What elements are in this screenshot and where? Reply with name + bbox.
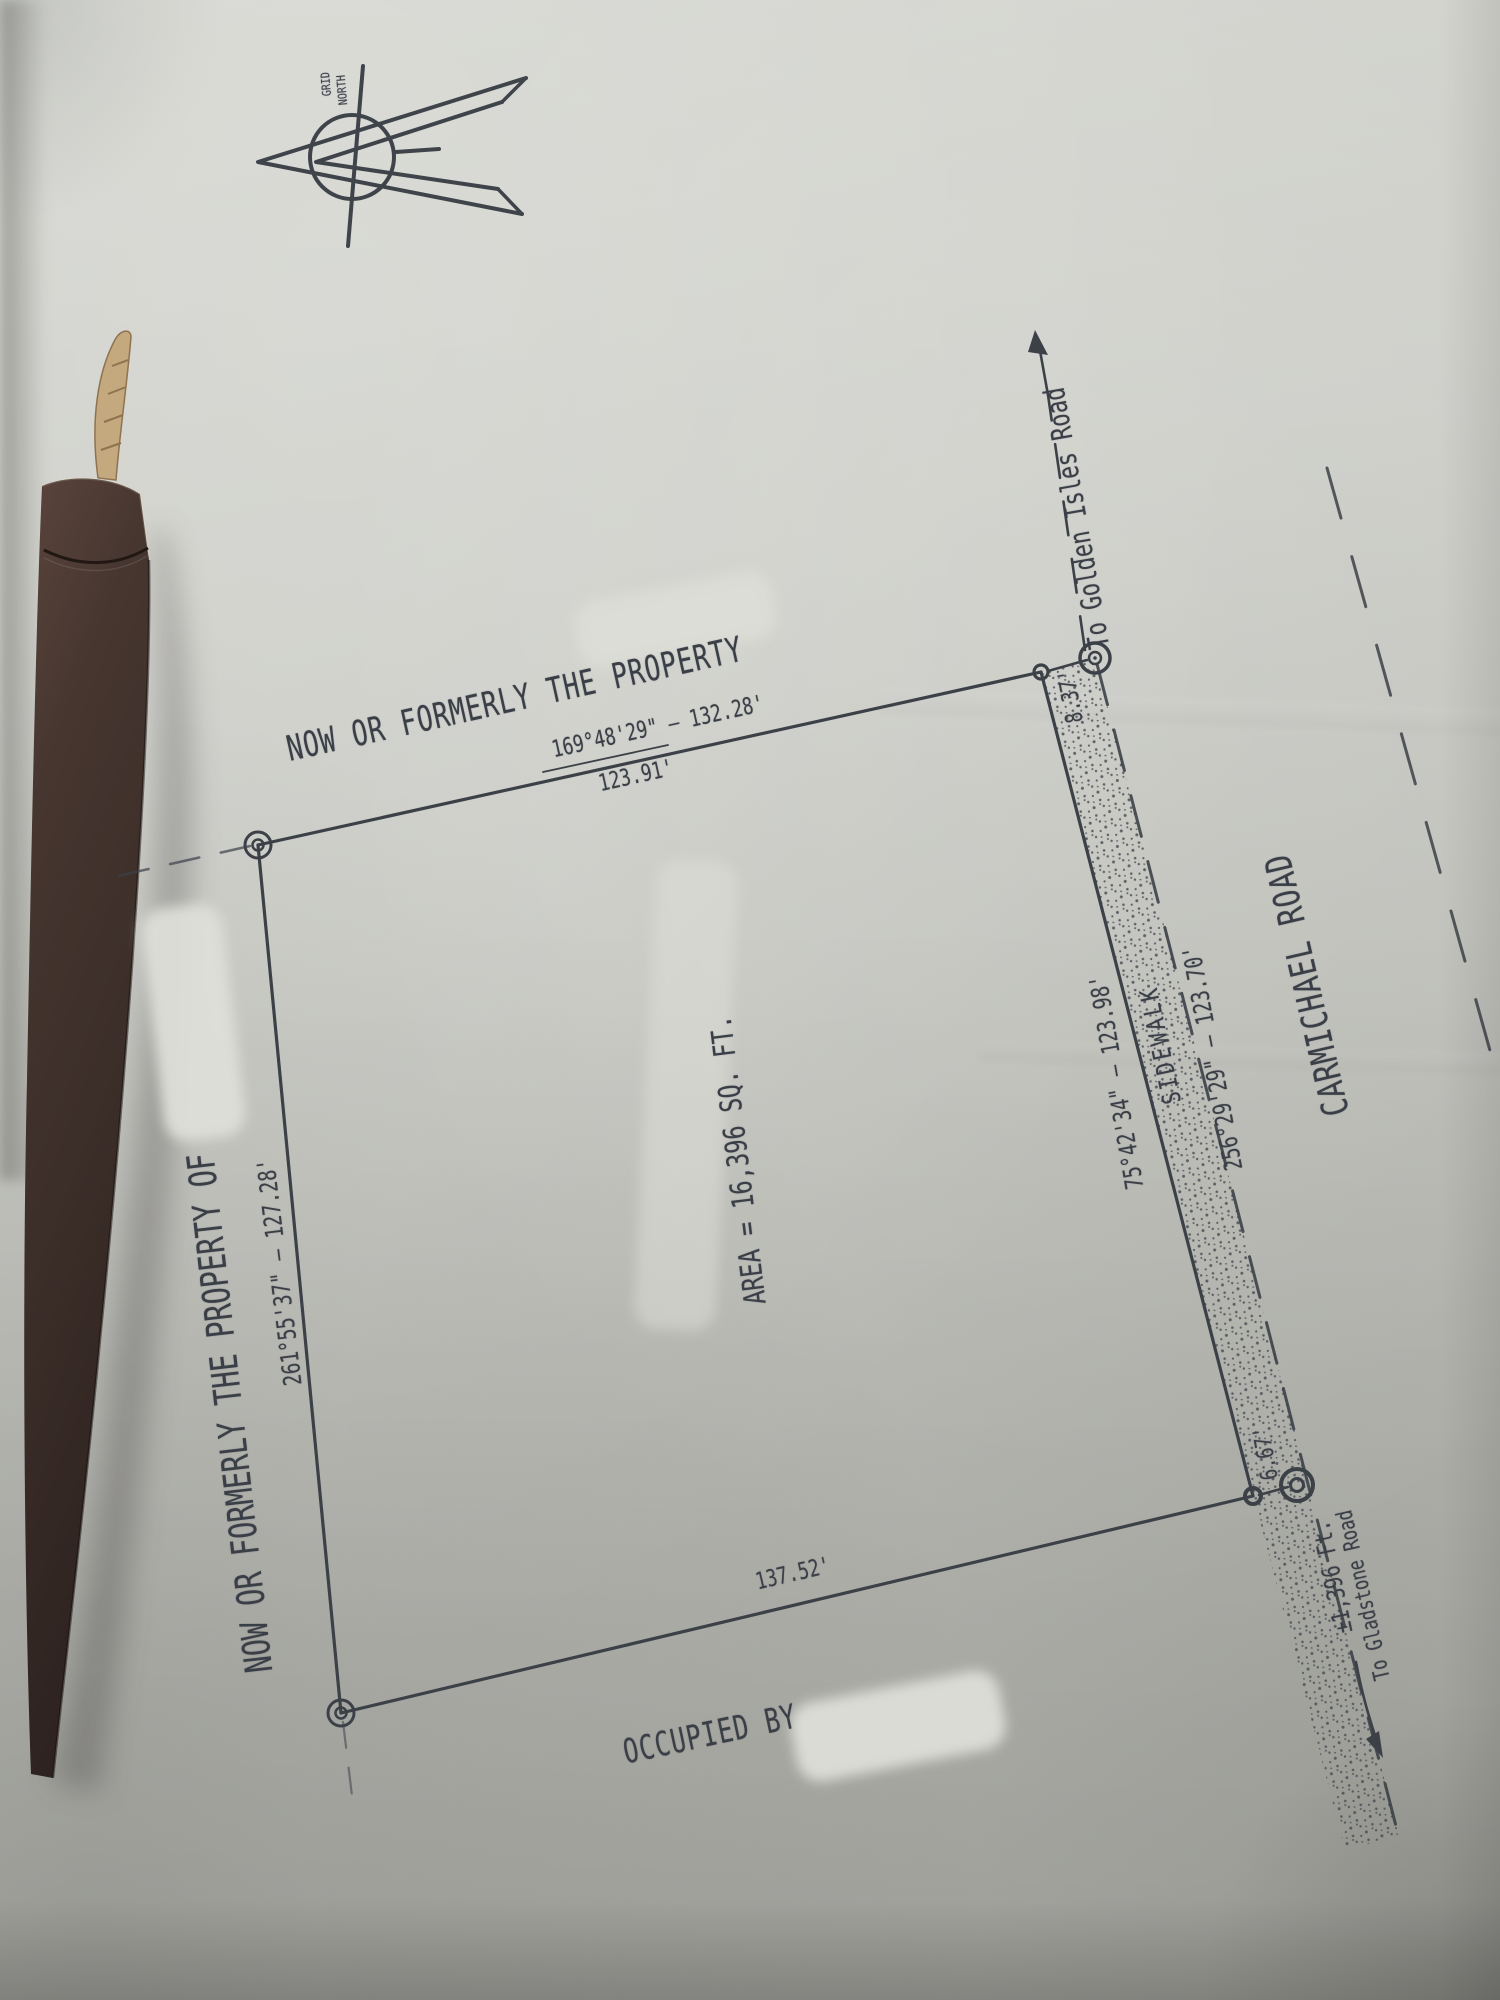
road-centerline-dashed <box>1327 468 1496 1072</box>
north-arrow-tick <box>396 149 439 152</box>
grid-north-label-line2: NORTH <box>335 74 351 105</box>
west-line-extension-dashed <box>343 1722 353 1804</box>
north-line-extension-dashed <box>100 846 250 880</box>
golden-isles-arrowhead <box>1028 330 1048 355</box>
boundary-south <box>341 1496 1253 1713</box>
sidewalk-stipple-band <box>1041 658 1399 1850</box>
survey-photo: GRID NORTH NOW OR FORMERLY THE PROPERTY … <box>0 0 1500 2000</box>
north-arrow-axis <box>348 66 363 246</box>
north-arrow <box>230 40 560 280</box>
grid-north-label-line1: GRID <box>319 71 334 96</box>
